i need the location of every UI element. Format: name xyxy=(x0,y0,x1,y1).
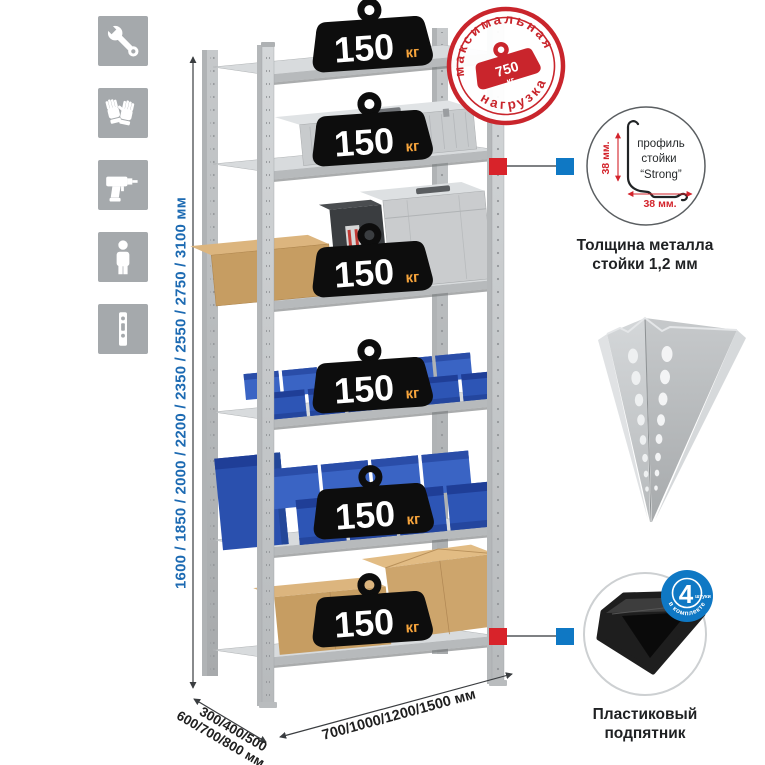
callout-marker-blue xyxy=(556,628,574,645)
profile-caption-line1: Толщина металла xyxy=(560,236,730,255)
rack-post-front-left xyxy=(257,42,277,708)
plastic-foot-circle: 4 штуки в комплекте xyxy=(584,570,713,695)
corner-post-image xyxy=(598,318,746,522)
shelf-load-badge xyxy=(309,338,434,414)
callout-marker-blue xyxy=(556,158,574,175)
width-dimension-label: 700/1000/1200/1500 мм xyxy=(320,687,477,744)
callout-top xyxy=(489,158,574,175)
post-marker-red xyxy=(489,158,507,175)
height-dimension-label: 1600 / 1850 / 2000 / 2200 / 2350 / 2550 … xyxy=(173,197,190,589)
profile-dim-horizontal: 38 мм. xyxy=(643,198,676,210)
profile-caption-line2: стойки 1,2 мм xyxy=(560,255,730,274)
shelf-load-badge xyxy=(309,91,434,167)
width-dimension: 700/1000/1200/1500 мм xyxy=(280,674,512,744)
kit-count-badge: 4 штуки в комплекте xyxy=(661,570,713,622)
kit-count-small: штуки xyxy=(695,594,711,600)
profile-label-2: стойки xyxy=(641,153,676,165)
shelf-load-badge xyxy=(309,0,434,73)
kit-count: 4 xyxy=(679,579,694,609)
post-marker-red xyxy=(489,628,507,645)
foot-caption-line2: подпятник xyxy=(560,724,730,743)
profile-label-1: профиль xyxy=(637,138,685,150)
foot-caption-line1: Пластиковый xyxy=(560,705,730,724)
profile-caption: Толщина металла стойки 1,2 мм xyxy=(560,236,730,275)
foot-caption: Пластиковый подпятник xyxy=(560,705,730,744)
callout-bottom xyxy=(489,628,574,645)
rack-post-back-left xyxy=(202,50,218,676)
profile-detail-circle: 38 мм. 38 мм. профиль стойки “Strong” xyxy=(587,107,705,225)
profile-dim-vertical: 38 мм. xyxy=(600,141,612,174)
product-infographic: 150 кг xyxy=(0,0,765,765)
shelving-diagram: 150 кг xyxy=(0,0,765,765)
profile-label-3: “Strong” xyxy=(640,169,682,181)
